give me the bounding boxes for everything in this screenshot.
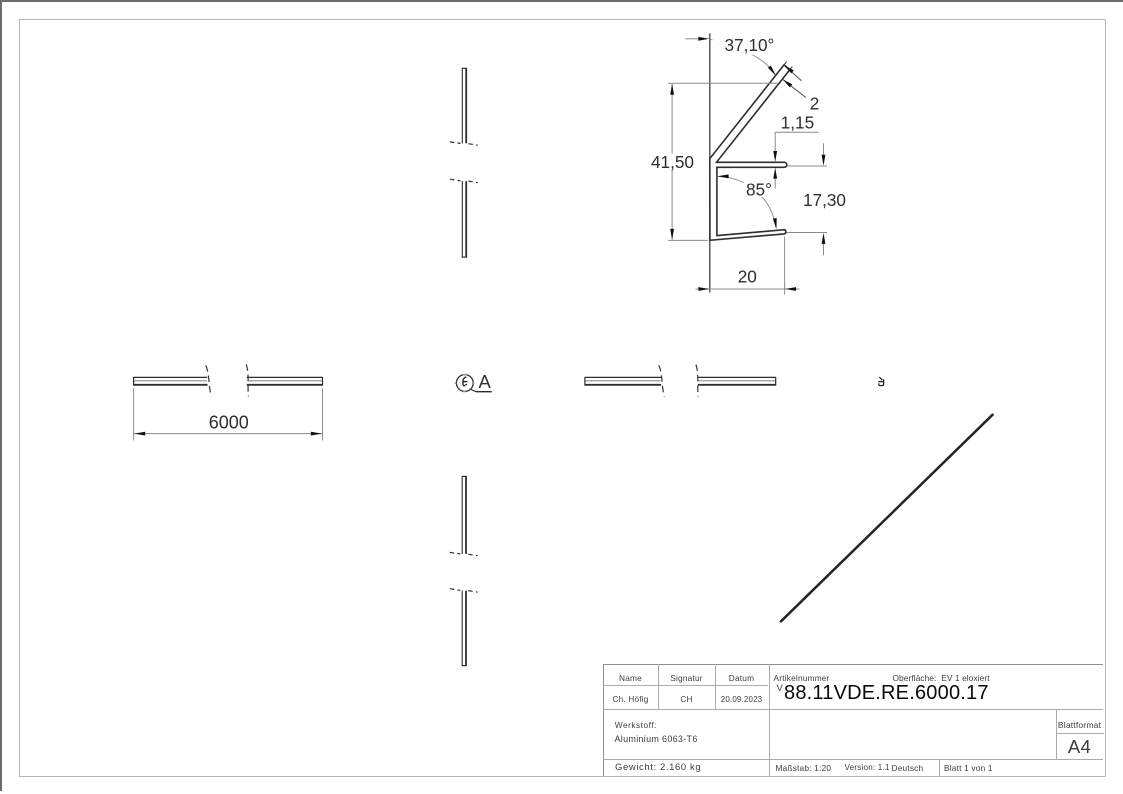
svg-text:2: 2 — [810, 93, 820, 113]
svg-text:85°: 85° — [746, 179, 772, 199]
svg-text:37,10°: 37,10° — [725, 35, 775, 55]
svg-text:6000: 6000 — [209, 413, 249, 433]
svg-text:17,30: 17,30 — [803, 190, 846, 210]
svg-text:20: 20 — [738, 267, 757, 287]
svg-text:A: A — [479, 371, 492, 392]
svg-text:41,50: 41,50 — [651, 152, 694, 172]
svg-text:1,15: 1,15 — [781, 112, 814, 132]
